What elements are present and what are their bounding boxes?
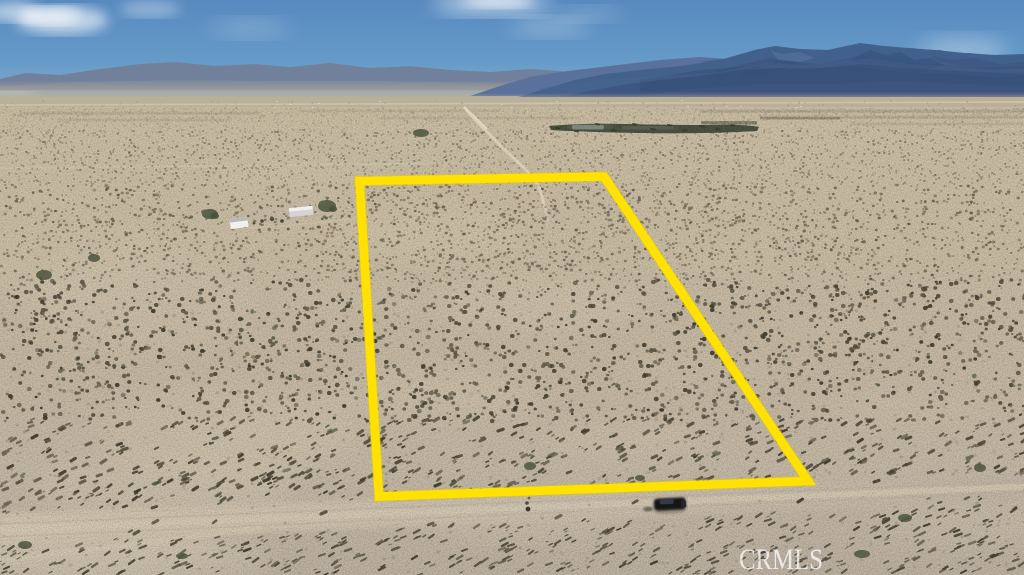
svg-text:CRMLS: CRMLS — [739, 543, 823, 575]
